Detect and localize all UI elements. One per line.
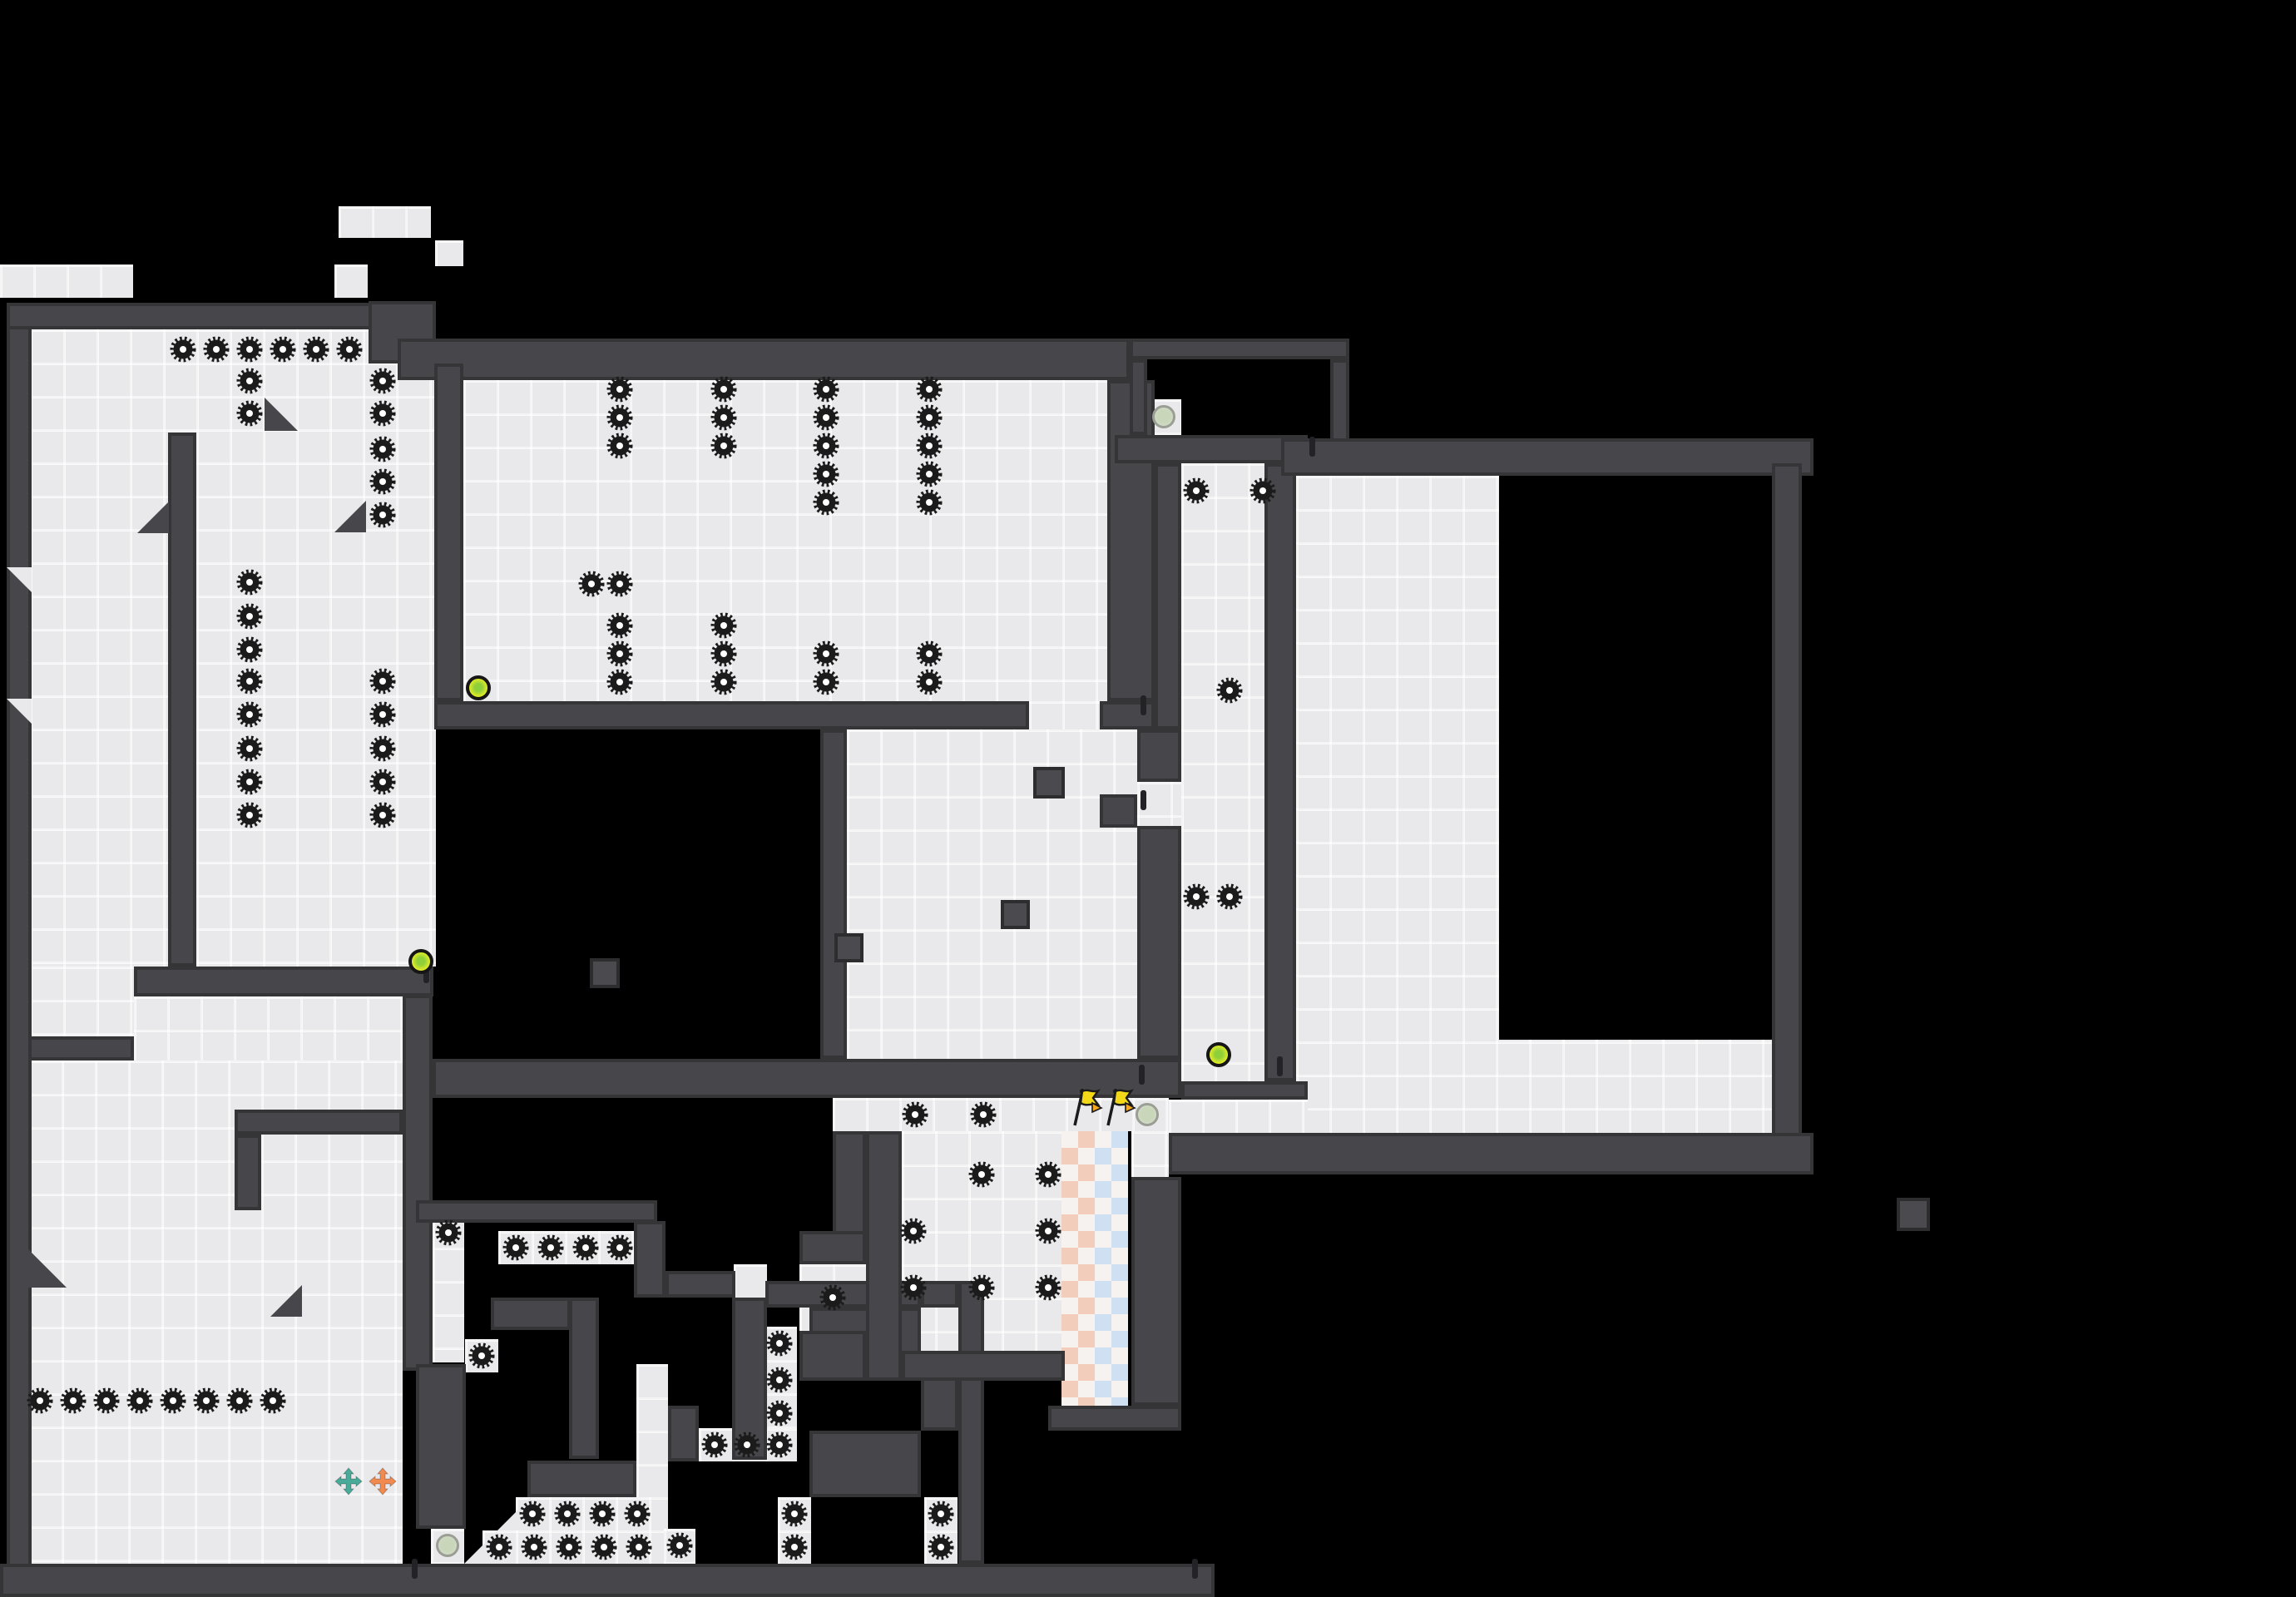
wall-segment bbox=[1169, 1133, 1814, 1174]
saw-gear-icon[interactable] bbox=[192, 1387, 220, 1415]
saw-gear-icon[interactable] bbox=[812, 403, 840, 432]
saw-gear-icon[interactable] bbox=[915, 640, 943, 668]
wall-segment bbox=[434, 701, 1029, 729]
saw-gear-icon[interactable] bbox=[710, 611, 738, 640]
door-marker-icon bbox=[1141, 790, 1146, 810]
saw-gear-icon[interactable] bbox=[710, 640, 738, 668]
wall-segment bbox=[1048, 1406, 1181, 1431]
wall-segment bbox=[1772, 463, 1802, 1174]
saw-gear-icon[interactable] bbox=[572, 1234, 600, 1262]
block-obstacle bbox=[1001, 900, 1030, 929]
saw-gear-icon[interactable] bbox=[1249, 477, 1277, 505]
saw-gear-icon[interactable] bbox=[588, 1500, 616, 1528]
saw-gear-icon[interactable] bbox=[765, 1366, 794, 1394]
wall-segment bbox=[7, 303, 398, 329]
saw-gear-icon[interactable] bbox=[235, 768, 264, 796]
saw-gear-icon[interactable] bbox=[485, 1533, 513, 1561]
door-marker-icon bbox=[1139, 1065, 1145, 1085]
saw-gear-icon[interactable] bbox=[235, 602, 264, 630]
saw-gear-icon[interactable] bbox=[434, 1219, 463, 1247]
wall-segment bbox=[403, 995, 433, 1371]
wall-segment bbox=[235, 1110, 403, 1135]
wall-segment bbox=[28, 1036, 134, 1061]
saw-gear-icon[interactable] bbox=[335, 335, 364, 363]
floor-tile-area bbox=[847, 729, 1137, 1059]
saw-gear-icon[interactable] bbox=[915, 432, 943, 460]
saw-gear-icon[interactable] bbox=[812, 432, 840, 460]
collected-orb-icon[interactable] bbox=[1152, 405, 1175, 428]
saw-gear-icon[interactable] bbox=[1034, 1160, 1062, 1189]
wall-segment bbox=[1281, 438, 1814, 476]
floor-tile-area bbox=[1169, 1100, 1308, 1133]
floor-tile-area bbox=[1131, 1131, 1169, 1177]
wall-segment bbox=[527, 1461, 636, 1497]
saw-gear-icon[interactable] bbox=[625, 1533, 653, 1561]
saw-gear-icon[interactable] bbox=[606, 611, 634, 640]
level-map bbox=[0, 0, 2296, 1597]
wall-segment bbox=[168, 433, 196, 967]
saw-gear-icon[interactable] bbox=[899, 1273, 928, 1302]
saw-gear-icon[interactable] bbox=[915, 460, 943, 488]
saw-gear-icon[interactable] bbox=[606, 570, 634, 598]
saw-gear-icon[interactable] bbox=[369, 667, 397, 695]
saw-gear-icon[interactable] bbox=[812, 488, 840, 517]
door-marker-icon bbox=[1277, 1056, 1283, 1076]
saw-gear-icon[interactable] bbox=[369, 768, 397, 796]
saw-gear-icon[interactable] bbox=[369, 501, 397, 529]
saw-gear-icon[interactable] bbox=[623, 1500, 651, 1528]
saw-gear-icon[interactable] bbox=[555, 1533, 583, 1561]
block-obstacle bbox=[590, 958, 620, 988]
move-arrows-orange-icon[interactable] bbox=[369, 1467, 397, 1496]
saw-gear-icon[interactable] bbox=[967, 1273, 996, 1302]
wall-segment bbox=[668, 1406, 699, 1461]
saw-gear-icon[interactable] bbox=[710, 668, 738, 696]
saw-gear-icon[interactable] bbox=[812, 640, 840, 668]
saw-gear-icon[interactable] bbox=[765, 1329, 794, 1357]
saw-gear-icon[interactable] bbox=[126, 1387, 154, 1415]
saw-gear-icon[interactable] bbox=[710, 375, 738, 403]
wall-segment bbox=[799, 1231, 866, 1264]
door-marker-icon bbox=[412, 1559, 418, 1579]
wall-segment bbox=[1100, 701, 1155, 729]
wall-segment bbox=[820, 729, 847, 1059]
floor-tile-area bbox=[1181, 463, 1264, 1081]
door-marker-icon bbox=[1192, 1559, 1198, 1579]
saw-gear-icon[interactable] bbox=[812, 668, 840, 696]
saw-gear-icon[interactable] bbox=[915, 668, 943, 696]
finish-flag-icon[interactable] bbox=[1101, 1086, 1139, 1128]
checker-finish-strip bbox=[1061, 1131, 1095, 1406]
saw-gear-icon[interactable] bbox=[700, 1431, 729, 1459]
saw-gear-icon[interactable] bbox=[765, 1431, 794, 1459]
saw-gear-icon[interactable] bbox=[710, 403, 738, 432]
floor-tile-area bbox=[1029, 701, 1100, 730]
saw-gear-icon[interactable] bbox=[967, 1160, 996, 1189]
saw-gear-icon[interactable] bbox=[202, 335, 230, 363]
saw-gear-icon[interactable] bbox=[819, 1283, 847, 1312]
floor-tile-area bbox=[134, 996, 403, 1061]
saw-gear-icon[interactable] bbox=[537, 1234, 565, 1262]
saw-gear-icon[interactable] bbox=[590, 1533, 618, 1561]
saw-gear-icon[interactable] bbox=[1182, 477, 1210, 505]
wall-segment bbox=[491, 1298, 571, 1330]
saw-gear-icon[interactable] bbox=[518, 1500, 547, 1528]
move-arrows-teal-icon[interactable] bbox=[334, 1467, 363, 1496]
saw-gear-icon[interactable] bbox=[235, 399, 264, 428]
floor-tile-area bbox=[30, 967, 134, 1036]
wall-segment bbox=[398, 339, 1130, 380]
saw-gear-icon[interactable] bbox=[369, 801, 397, 829]
saw-gear-icon[interactable] bbox=[1215, 676, 1244, 705]
saw-gear-icon[interactable] bbox=[1215, 883, 1244, 911]
wall-segment bbox=[1115, 435, 1308, 463]
saw-gear-icon[interactable] bbox=[733, 1431, 761, 1459]
floor-tile-area bbox=[0, 265, 133, 298]
saw-gear-icon[interactable] bbox=[606, 403, 634, 432]
floor-tile-area bbox=[463, 380, 1107, 729]
floor-tile-area bbox=[435, 240, 463, 266]
wall-segment bbox=[1137, 826, 1181, 1059]
wall-segment bbox=[416, 1364, 466, 1529]
saw-gear-icon[interactable] bbox=[969, 1100, 997, 1129]
exit-orb[interactable] bbox=[408, 949, 433, 974]
block-obstacle bbox=[834, 933, 863, 962]
wall-segment bbox=[1131, 1177, 1181, 1406]
wall-segment bbox=[235, 1135, 261, 1210]
saw-gear-icon[interactable] bbox=[765, 1399, 794, 1427]
door-marker-icon bbox=[1309, 437, 1315, 457]
saw-gear-icon[interactable] bbox=[26, 1387, 54, 1415]
saw-gear-icon[interactable] bbox=[915, 403, 943, 432]
saw-gear-icon[interactable] bbox=[369, 700, 397, 729]
saw-gear-icon[interactable] bbox=[1182, 883, 1210, 911]
wall-segment bbox=[1264, 463, 1296, 1081]
wall-segment bbox=[1155, 463, 1181, 729]
wall-segment bbox=[958, 1281, 984, 1564]
pit-void bbox=[1499, 476, 1772, 1040]
saw-gear-icon[interactable] bbox=[915, 375, 943, 403]
saw-gear-icon[interactable] bbox=[235, 801, 264, 829]
saw-gear-icon[interactable] bbox=[606, 1234, 634, 1262]
saw-gear-icon[interactable] bbox=[225, 1387, 254, 1415]
saw-gear-icon[interactable] bbox=[235, 667, 264, 695]
saw-gear-icon[interactable] bbox=[159, 1387, 187, 1415]
wall-segment bbox=[634, 1221, 666, 1298]
wall-segment bbox=[1137, 729, 1181, 782]
saw-gear-icon[interactable] bbox=[606, 668, 634, 696]
checker-finish-strip bbox=[1095, 1131, 1128, 1406]
saw-gear-icon[interactable] bbox=[235, 335, 264, 363]
saw-gear-icon[interactable] bbox=[899, 1217, 928, 1245]
exit-orb[interactable] bbox=[1206, 1042, 1231, 1067]
wall-segment bbox=[569, 1298, 599, 1459]
saw-gear-icon[interactable] bbox=[369, 399, 397, 428]
saw-gear-icon[interactable] bbox=[812, 460, 840, 488]
saw-gear-icon[interactable] bbox=[812, 375, 840, 403]
saw-gear-icon[interactable] bbox=[666, 1531, 694, 1560]
block-obstacle bbox=[1897, 1198, 1930, 1231]
saw-gear-icon[interactable] bbox=[235, 734, 264, 763]
wall-segment bbox=[134, 967, 433, 996]
wall-segment bbox=[799, 1331, 866, 1381]
wall-segment bbox=[866, 1131, 902, 1381]
saw-gear-icon[interactable] bbox=[915, 488, 943, 517]
saw-gear-icon[interactable] bbox=[235, 367, 264, 395]
collected-orb-icon[interactable] bbox=[436, 1534, 459, 1557]
saw-gear-icon[interactable] bbox=[369, 367, 397, 395]
saw-gear-icon[interactable] bbox=[606, 640, 634, 668]
wall-segment bbox=[1100, 794, 1137, 828]
saw-gear-icon[interactable] bbox=[502, 1234, 530, 1262]
wall-segment bbox=[809, 1431, 921, 1497]
saw-gear-icon[interactable] bbox=[92, 1387, 121, 1415]
saw-gear-icon[interactable] bbox=[780, 1533, 809, 1561]
saw-gear-icon[interactable] bbox=[235, 635, 264, 664]
saw-gear-icon[interactable] bbox=[269, 335, 297, 363]
saw-gear-icon[interactable] bbox=[1034, 1273, 1062, 1302]
saw-gear-icon[interactable] bbox=[927, 1533, 955, 1561]
saw-gear-icon[interactable] bbox=[577, 570, 606, 598]
saw-gear-icon[interactable] bbox=[235, 568, 264, 596]
saw-gear-icon[interactable] bbox=[710, 432, 738, 460]
exit-orb[interactable] bbox=[466, 675, 491, 700]
saw-gear-icon[interactable] bbox=[1034, 1217, 1062, 1245]
saw-gear-icon[interactable] bbox=[369, 734, 397, 763]
wall-segment bbox=[1130, 359, 1147, 435]
door-marker-icon bbox=[1141, 695, 1146, 715]
saw-gear-icon[interactable] bbox=[169, 335, 197, 363]
saw-gear-icon[interactable] bbox=[901, 1100, 929, 1129]
saw-gear-icon[interactable] bbox=[259, 1387, 287, 1415]
floor-tile-area bbox=[339, 206, 431, 238]
saw-gear-icon[interactable] bbox=[369, 435, 397, 463]
saw-gear-icon[interactable] bbox=[302, 335, 330, 363]
wall-segment bbox=[434, 363, 463, 701]
collected-orb-icon[interactable] bbox=[1136, 1103, 1159, 1126]
saw-gear-icon[interactable] bbox=[369, 467, 397, 496]
saw-gear-icon[interactable] bbox=[468, 1342, 496, 1370]
saw-gear-icon[interactable] bbox=[553, 1500, 581, 1528]
saw-gear-icon[interactable] bbox=[606, 432, 634, 460]
wall-segment bbox=[1130, 339, 1349, 359]
wall-segment bbox=[666, 1271, 735, 1298]
saw-gear-icon[interactable] bbox=[780, 1500, 809, 1528]
saw-gear-icon[interactable] bbox=[235, 700, 264, 729]
wall-segment bbox=[902, 1351, 1065, 1381]
saw-gear-icon[interactable] bbox=[520, 1533, 548, 1561]
wall-segment bbox=[0, 1564, 1215, 1597]
saw-gear-icon[interactable] bbox=[59, 1387, 87, 1415]
block-obstacle bbox=[1033, 767, 1065, 798]
saw-gear-icon[interactable] bbox=[606, 375, 634, 403]
floor-tile-area bbox=[334, 265, 368, 298]
floor-tile-area bbox=[734, 1264, 767, 1298]
saw-gear-icon[interactable] bbox=[927, 1500, 955, 1528]
wall-segment bbox=[1181, 1081, 1308, 1100]
